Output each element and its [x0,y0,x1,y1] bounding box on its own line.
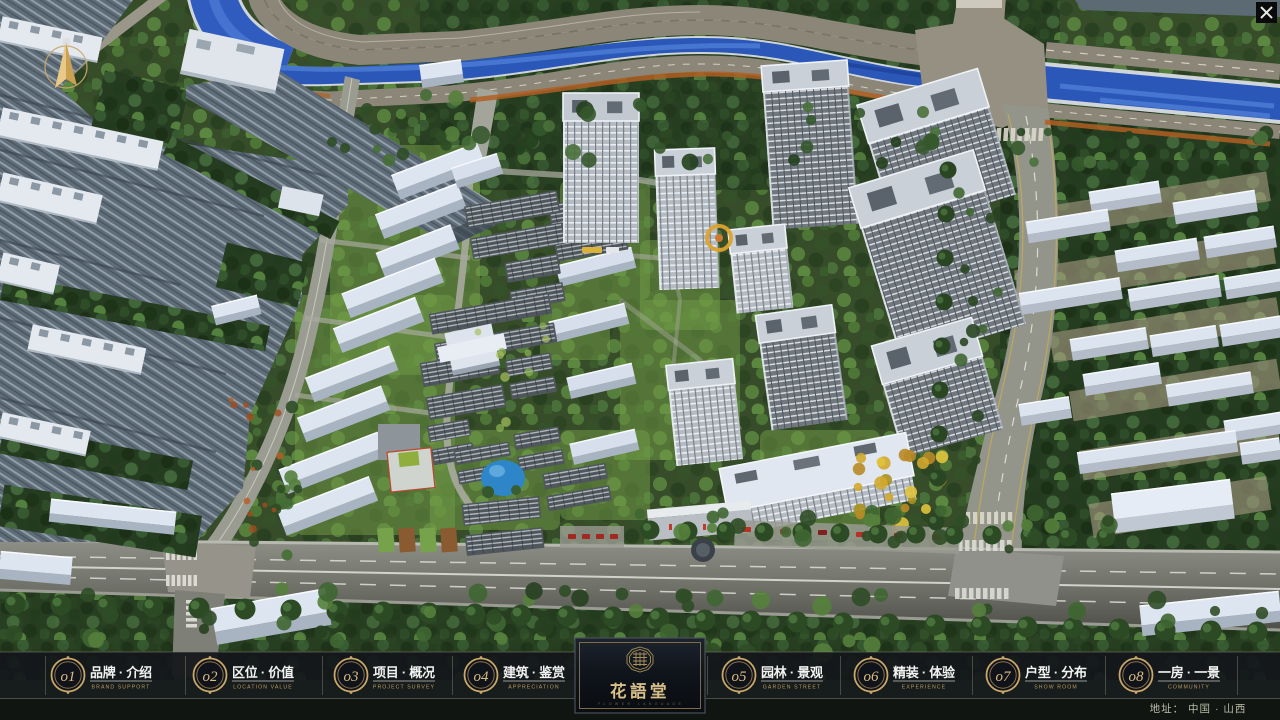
svg-text:BRAND SUPPORT: BRAND SUPPORT [92,685,151,691]
svg-text:地址： 中国 · 山西: 地址： 中国 · 山西 [1150,702,1247,715]
svg-text:精装 · 体验: 精装 · 体验 [893,665,956,680]
svg-text:建筑 · 鉴赏: 建筑 · 鉴赏 [503,665,565,680]
svg-text:o3: o3 [344,669,359,685]
svg-text:APPRECIATION: APPRECIATION [508,685,559,691]
svg-text:区位 · 价值: 区位 · 价值 [232,665,294,680]
svg-text:F L O W E R · L A N G U A G E: F L O W E R · L A N G U A G E [598,702,682,706]
svg-text:o4: o4 [474,669,490,685]
svg-text:o6: o6 [864,669,880,685]
svg-text:COMMUNITY: COMMUNITY [1168,685,1210,691]
svg-text:品牌 · 介绍: 品牌 · 介绍 [90,665,152,680]
svg-text:一房 · 一景: 一房 · 一景 [1158,665,1220,680]
svg-text:o8: o8 [1129,669,1145,685]
svg-text:SHOW ROOM: SHOW ROOM [1034,685,1078,691]
svg-text:户型 · 分布: 户型 · 分布 [1025,665,1087,680]
svg-text:o1: o1 [61,669,76,685]
svg-text:GARDEN STREET: GARDEN STREET [763,685,821,691]
svg-text:园林 · 景观: 园林 · 景观 [761,665,823,680]
svg-text:o5: o5 [732,669,748,685]
svg-text:花語堂: 花語堂 [610,681,670,701]
svg-text:LOCATION VALUE: LOCATION VALUE [233,685,293,691]
svg-text:PROJECT SURVEY: PROJECT SURVEY [373,685,435,691]
svg-text:EXPERIENCE: EXPERIENCE [902,685,946,691]
svg-text:o7: o7 [996,669,1013,685]
svg-text:项目 · 概况: 项目 · 概况 [373,665,435,680]
svg-text:o2: o2 [203,669,219,685]
